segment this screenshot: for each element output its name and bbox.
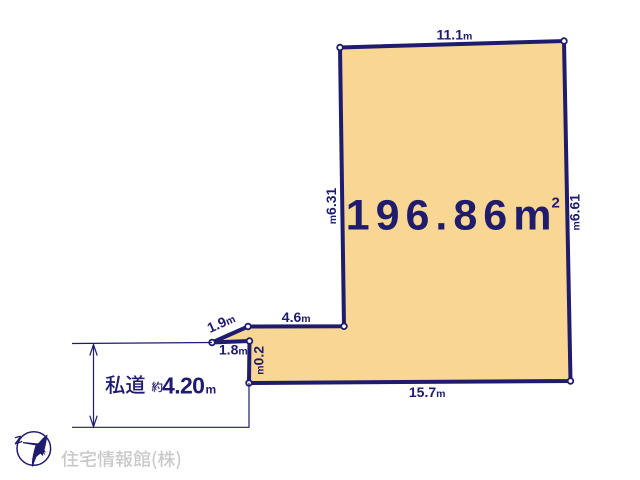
svg-text:15.7m: 15.7m — [409, 384, 446, 400]
svg-text:4.6m: 4.6m — [282, 309, 311, 325]
svg-text:11.1m: 11.1m — [437, 27, 473, 43]
svg-text:1.8m: 1.8m — [219, 342, 248, 358]
svg-text:4.20: 4.20 — [162, 373, 204, 399]
svg-text:196.86m2: 196.86m2 — [346, 191, 566, 239]
svg-text:m6.31: m6.31 — [323, 187, 339, 224]
svg-text:m: m — [206, 383, 217, 397]
